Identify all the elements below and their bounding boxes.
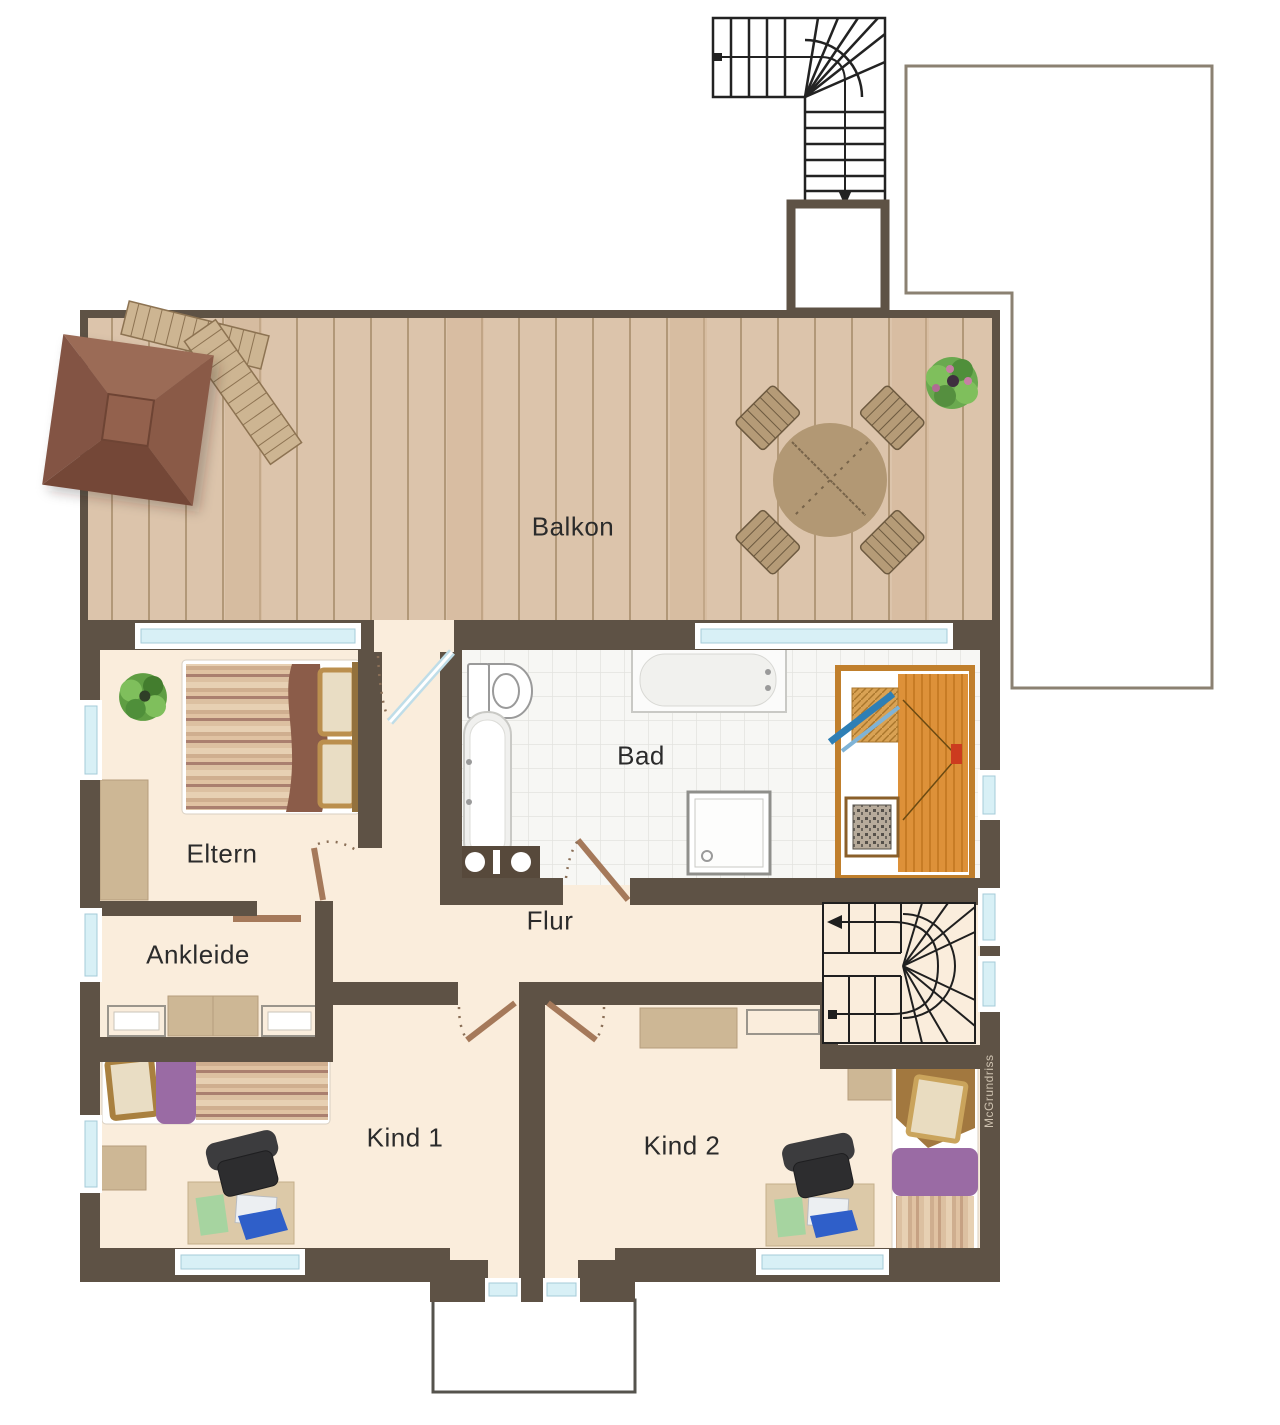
window-ankleide-left <box>80 908 102 982</box>
sauna <box>830 668 972 878</box>
floor-plan-drawing <box>0 0 1280 1425</box>
parasol <box>42 334 220 512</box>
window-stair-right-1 <box>978 888 1000 946</box>
window-eltern-left <box>80 700 102 780</box>
dormer-outline-bottom <box>433 1300 635 1392</box>
label-kind1: Kind 1 <box>367 1123 444 1154</box>
interior-staircase <box>823 903 975 1043</box>
window-bay-left <box>485 1278 521 1302</box>
window-bay-right <box>543 1278 580 1302</box>
label-balkon: Balkon <box>532 512 615 543</box>
kind2-bed <box>892 1058 978 1270</box>
exterior-staircase <box>713 18 885 206</box>
floor-plan: Balkon Eltern Ankleide Bad Flur Kind 1 K… <box>0 0 1280 1425</box>
freestanding-bathtub <box>464 712 511 865</box>
window-kind2-bottom <box>756 1249 889 1275</box>
window-eltern-top <box>135 623 361 649</box>
label-kind2: Kind 2 <box>644 1131 721 1162</box>
balcony-plant <box>926 357 978 409</box>
eltern-plant <box>119 673 167 721</box>
balcony-door-opening <box>374 620 454 652</box>
window-kind1-left <box>80 1115 102 1193</box>
label-flur: Flur <box>527 906 574 937</box>
stair-landing <box>791 204 885 312</box>
label-eltern: Eltern <box>187 839 258 870</box>
window-bad-top <box>695 623 953 649</box>
window-stair-right-2 <box>978 956 1000 1012</box>
label-ankleide: Ankleide <box>146 940 250 971</box>
window-bad-right <box>978 770 1000 820</box>
kind1-nightstand <box>100 1146 146 1190</box>
washbasin-counter <box>454 846 540 878</box>
label-bad: Bad <box>617 741 665 772</box>
bathtub <box>632 648 786 712</box>
window-kind1-bottom <box>175 1249 305 1275</box>
kind1-bed <box>102 1052 330 1124</box>
eltern-bed <box>182 660 361 814</box>
watermark-text: McGrundriss <box>982 1054 996 1128</box>
toilet <box>468 664 532 718</box>
eltern-wardrobe <box>100 780 148 900</box>
shower <box>688 792 770 874</box>
